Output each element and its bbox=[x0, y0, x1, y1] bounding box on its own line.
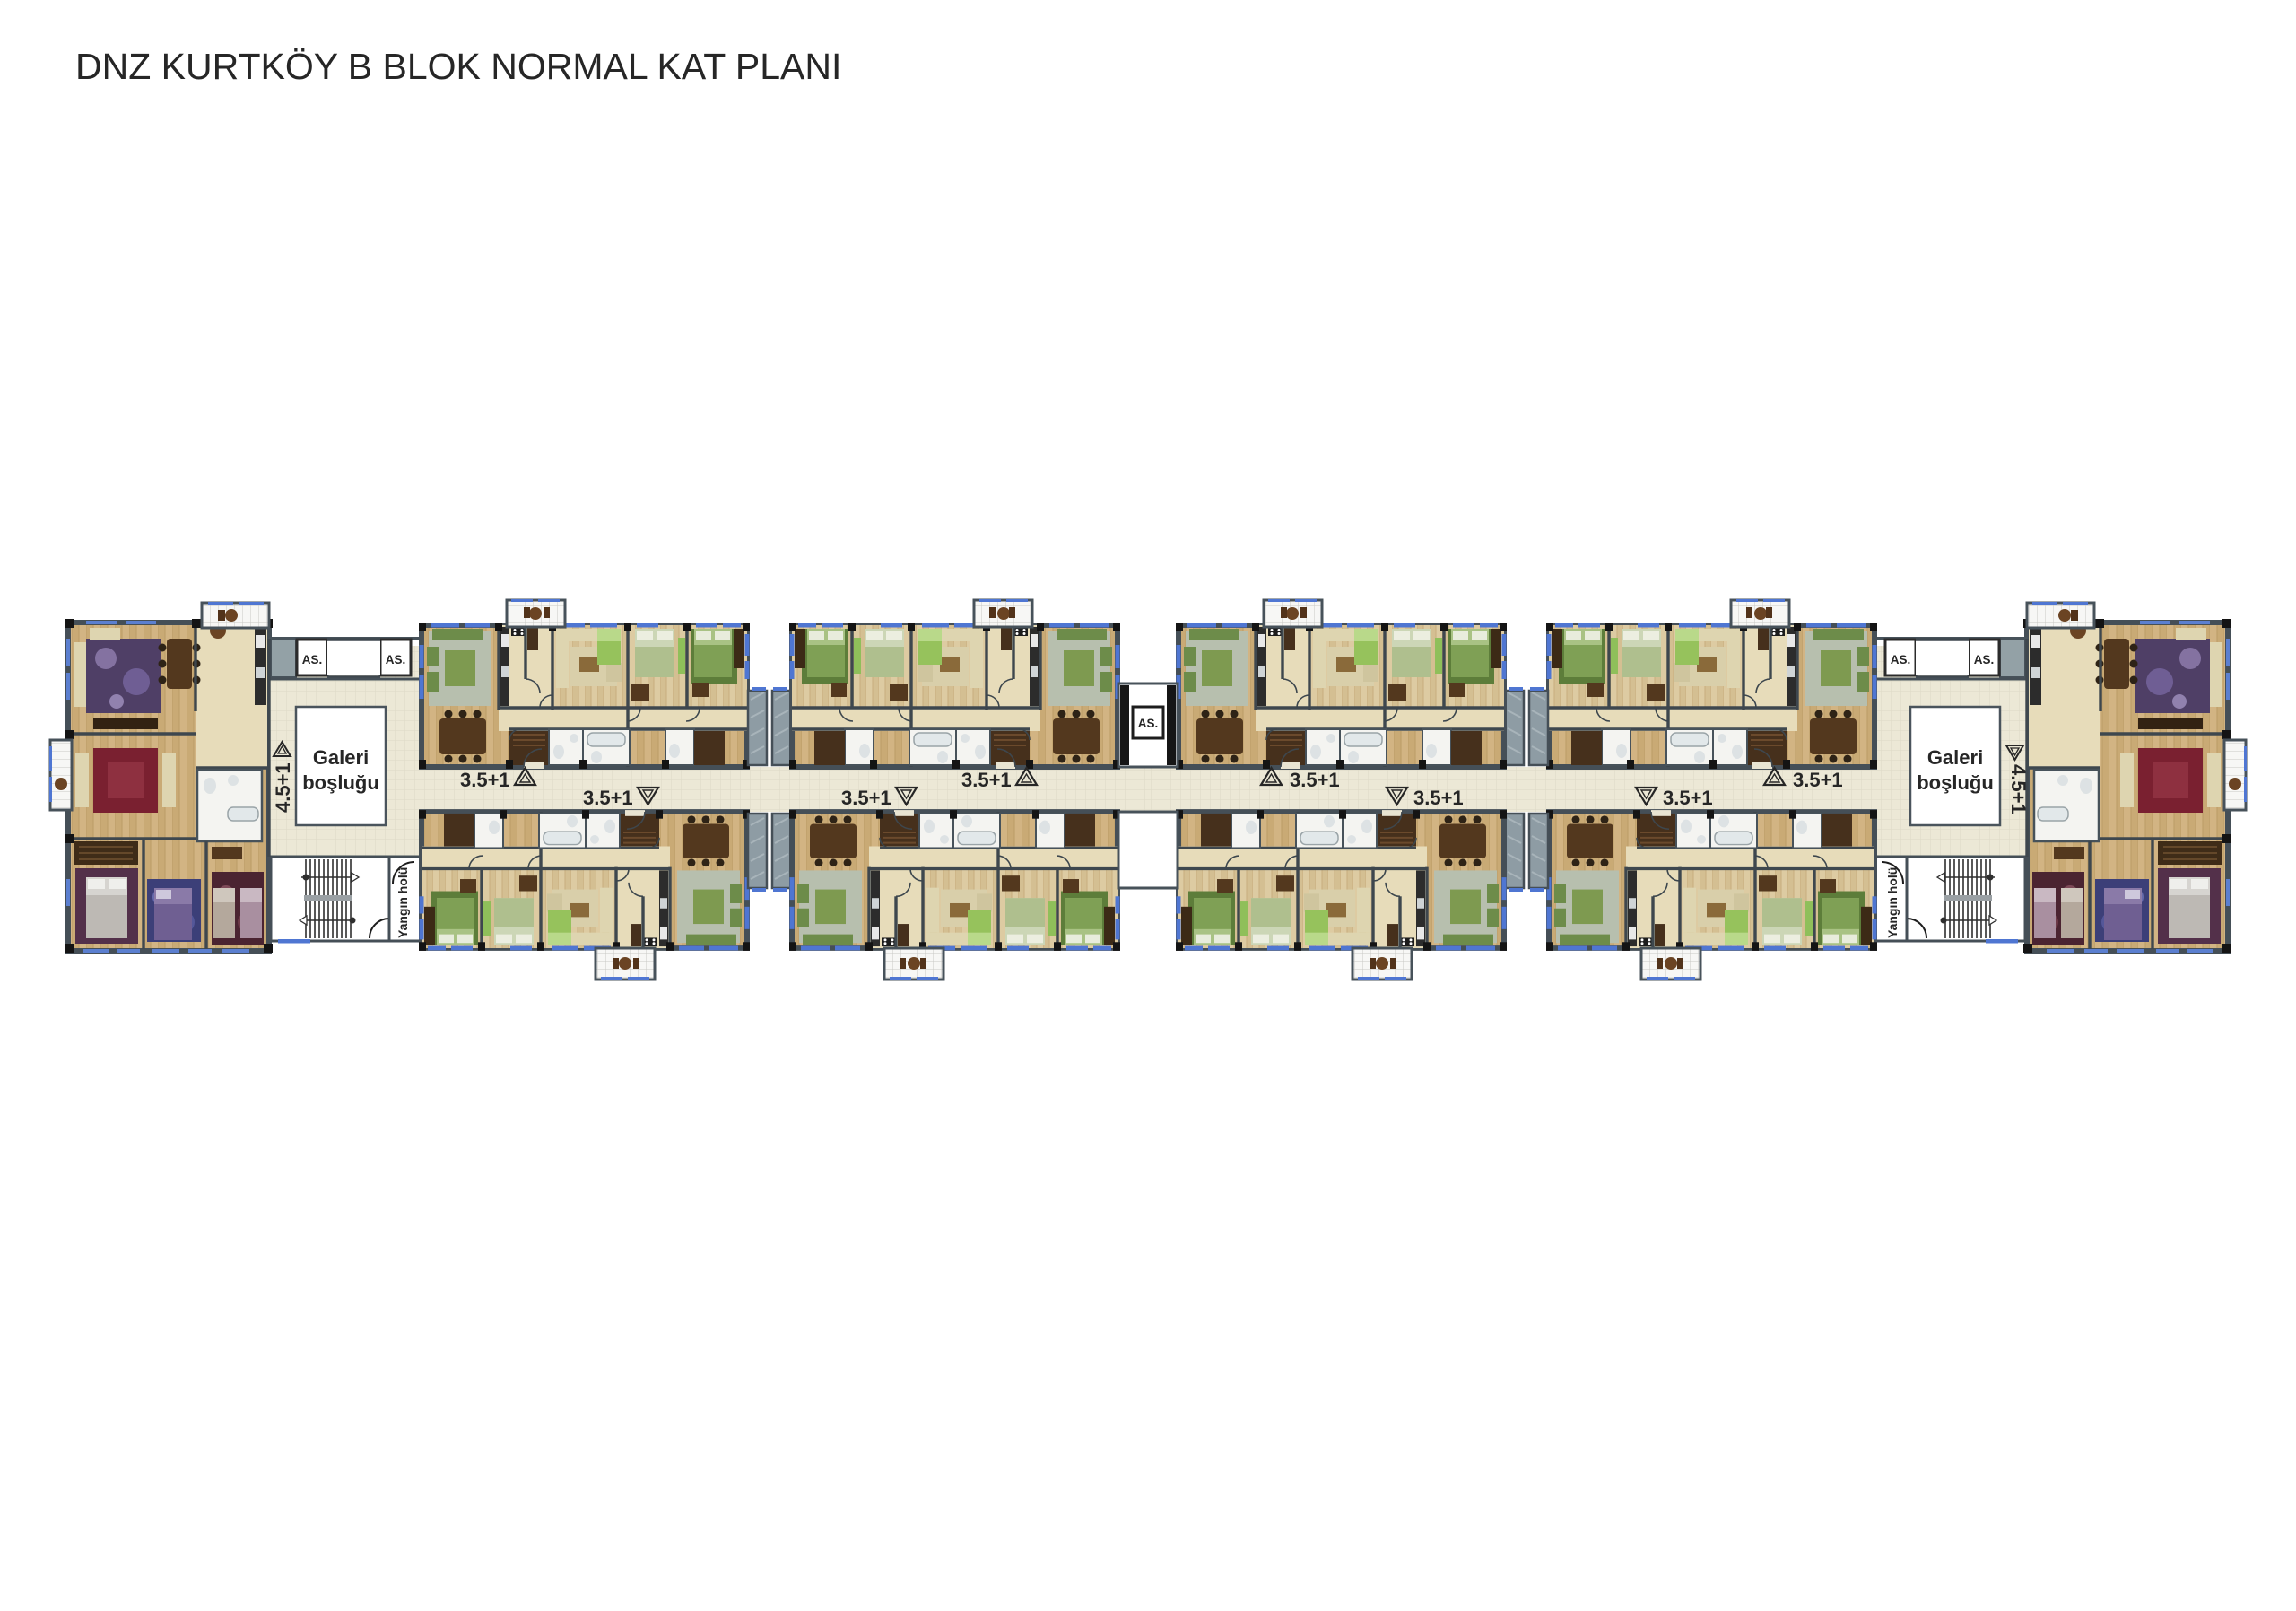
svg-text:3.5+1: 3.5+1 bbox=[583, 787, 633, 809]
svg-text:4.5+1: 4.5+1 bbox=[2007, 764, 2030, 814]
svg-text:boşluğu: boşluğu bbox=[1917, 771, 1994, 794]
svg-text:Galeri: Galeri bbox=[1927, 746, 1983, 769]
svg-text:3.5+1: 3.5+1 bbox=[961, 769, 1012, 791]
svg-text:Yangın holü: Yangın holü bbox=[396, 867, 410, 938]
svg-text:Yangın holü: Yangın holü bbox=[1885, 867, 1900, 938]
svg-text:AS.: AS. bbox=[1974, 653, 1995, 666]
svg-text:Galeri: Galeri bbox=[313, 746, 369, 769]
svg-text:3.5+1: 3.5+1 bbox=[1413, 787, 1464, 809]
svg-text:boşluğu: boşluğu bbox=[302, 771, 379, 794]
svg-text:AS.: AS. bbox=[386, 653, 406, 666]
svg-text:3.5+1: 3.5+1 bbox=[460, 769, 510, 791]
svg-text:AS.: AS. bbox=[302, 653, 323, 666]
svg-text:DNZ KURTKÖY B BLOK NORMAL KAT: DNZ KURTKÖY B BLOK NORMAL KAT PLANI bbox=[75, 46, 841, 87]
svg-text:3.5+1: 3.5+1 bbox=[1793, 769, 1843, 791]
svg-text:AS.: AS. bbox=[1891, 653, 1911, 666]
svg-text:3.5+1: 3.5+1 bbox=[1663, 787, 1713, 809]
svg-text:3.5+1: 3.5+1 bbox=[841, 787, 891, 809]
svg-text:3.5+1: 3.5+1 bbox=[1290, 769, 1340, 791]
svg-text:4.5+1: 4.5+1 bbox=[272, 762, 294, 813]
svg-text:AS.: AS. bbox=[1138, 717, 1159, 730]
